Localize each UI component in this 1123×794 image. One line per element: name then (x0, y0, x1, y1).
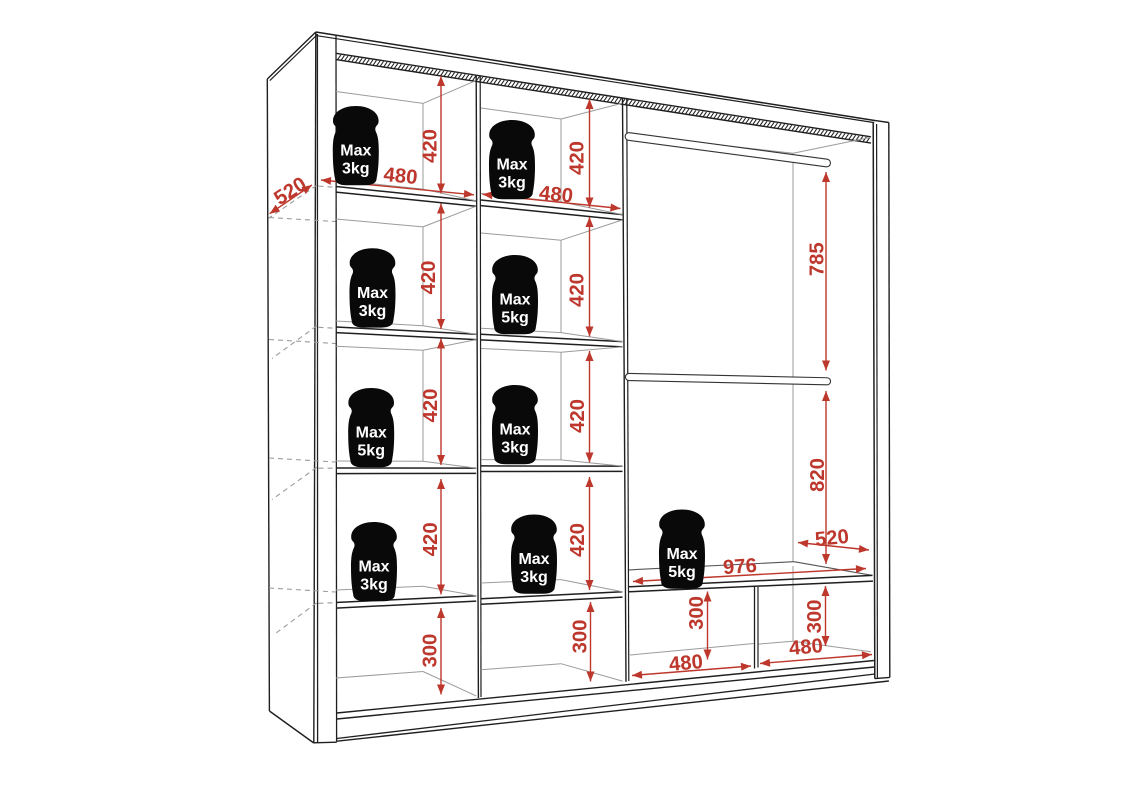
svg-text:480: 480 (538, 182, 574, 207)
svg-text:Max: Max (357, 285, 388, 302)
svg-text:3kg: 3kg (360, 577, 388, 594)
svg-text:5kg: 5kg (501, 310, 529, 327)
svg-text:Max: Max (340, 143, 371, 160)
svg-text:3kg: 3kg (501, 440, 529, 457)
svg-text:420: 420 (420, 522, 442, 556)
svg-text:976: 976 (722, 555, 757, 579)
svg-text:420: 420 (567, 523, 589, 557)
svg-text:480: 480 (668, 651, 704, 676)
svg-text:3kg: 3kg (498, 175, 526, 192)
svg-text:820: 820 (807, 458, 829, 492)
svg-text:420: 420 (567, 141, 589, 175)
svg-text:480: 480 (788, 635, 824, 660)
svg-text:420: 420 (419, 129, 441, 163)
svg-text:Max: Max (518, 551, 549, 568)
svg-text:3kg: 3kg (342, 161, 370, 178)
svg-text:785: 785 (806, 242, 828, 276)
svg-text:Max: Max (356, 425, 387, 442)
svg-text:5kg: 5kg (668, 564, 696, 581)
svg-text:420: 420 (418, 261, 440, 295)
svg-text:480: 480 (383, 164, 419, 189)
svg-text:3kg: 3kg (520, 569, 548, 586)
svg-text:420: 420 (420, 389, 442, 423)
svg-text:420: 420 (567, 399, 589, 433)
svg-text:520: 520 (814, 526, 850, 551)
svg-text:5kg: 5kg (357, 443, 385, 460)
svg-text:Max: Max (496, 157, 527, 174)
svg-text:300: 300 (420, 634, 442, 668)
svg-text:300: 300 (686, 596, 708, 630)
svg-text:Max: Max (499, 292, 530, 309)
svg-text:300: 300 (569, 620, 591, 654)
svg-text:Max: Max (666, 546, 697, 563)
svg-text:Max: Max (499, 422, 530, 439)
svg-text:300: 300 (804, 600, 826, 634)
svg-text:3kg: 3kg (359, 303, 387, 320)
svg-text:Max: Max (358, 559, 389, 576)
svg-text:420: 420 (567, 273, 589, 307)
